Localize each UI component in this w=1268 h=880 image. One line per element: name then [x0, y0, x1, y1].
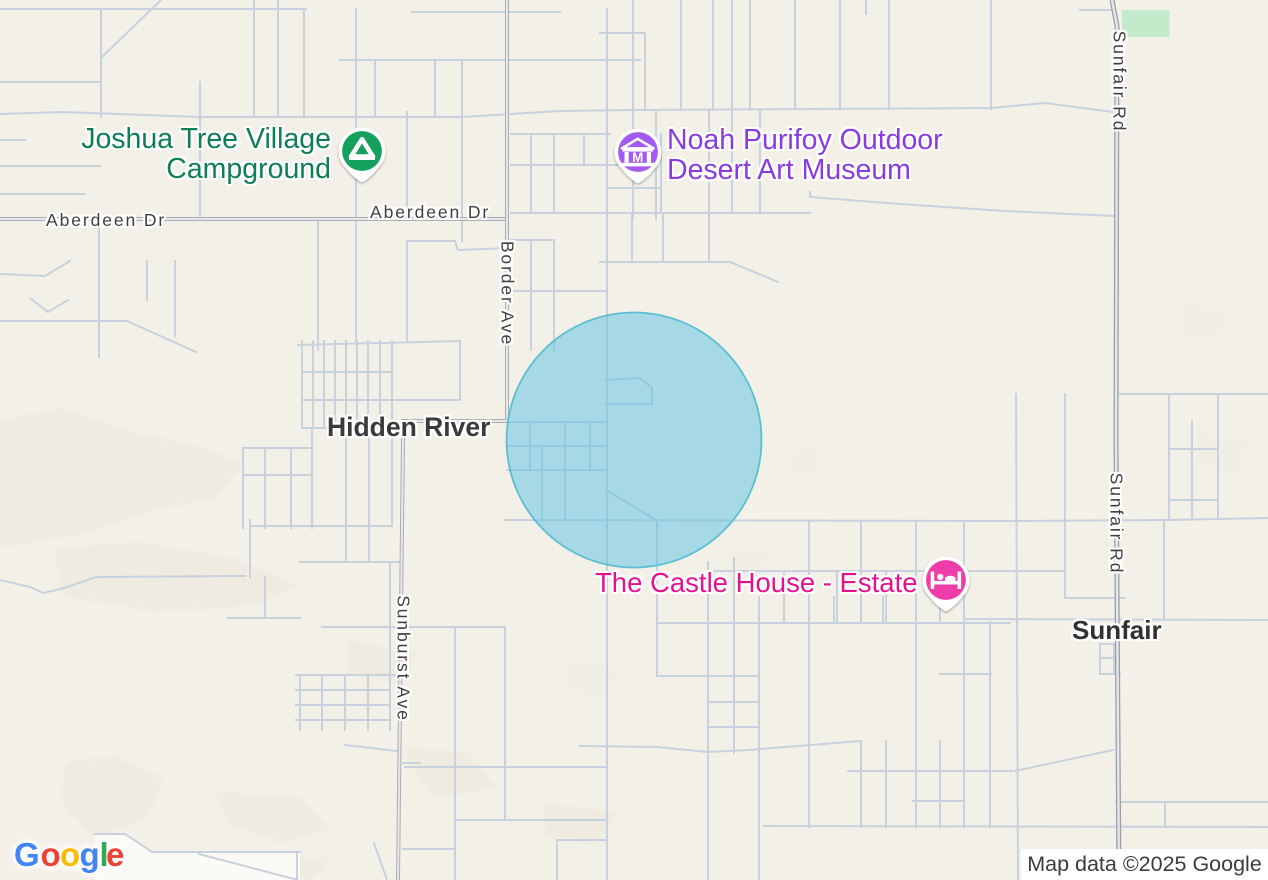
svg-text:G: G — [14, 836, 40, 873]
svg-text:g: g — [80, 836, 100, 873]
svg-text:M: M — [632, 150, 643, 165]
svg-text:o: o — [41, 836, 61, 873]
svg-text:e: e — [106, 836, 124, 873]
svg-text:o: o — [60, 836, 80, 873]
